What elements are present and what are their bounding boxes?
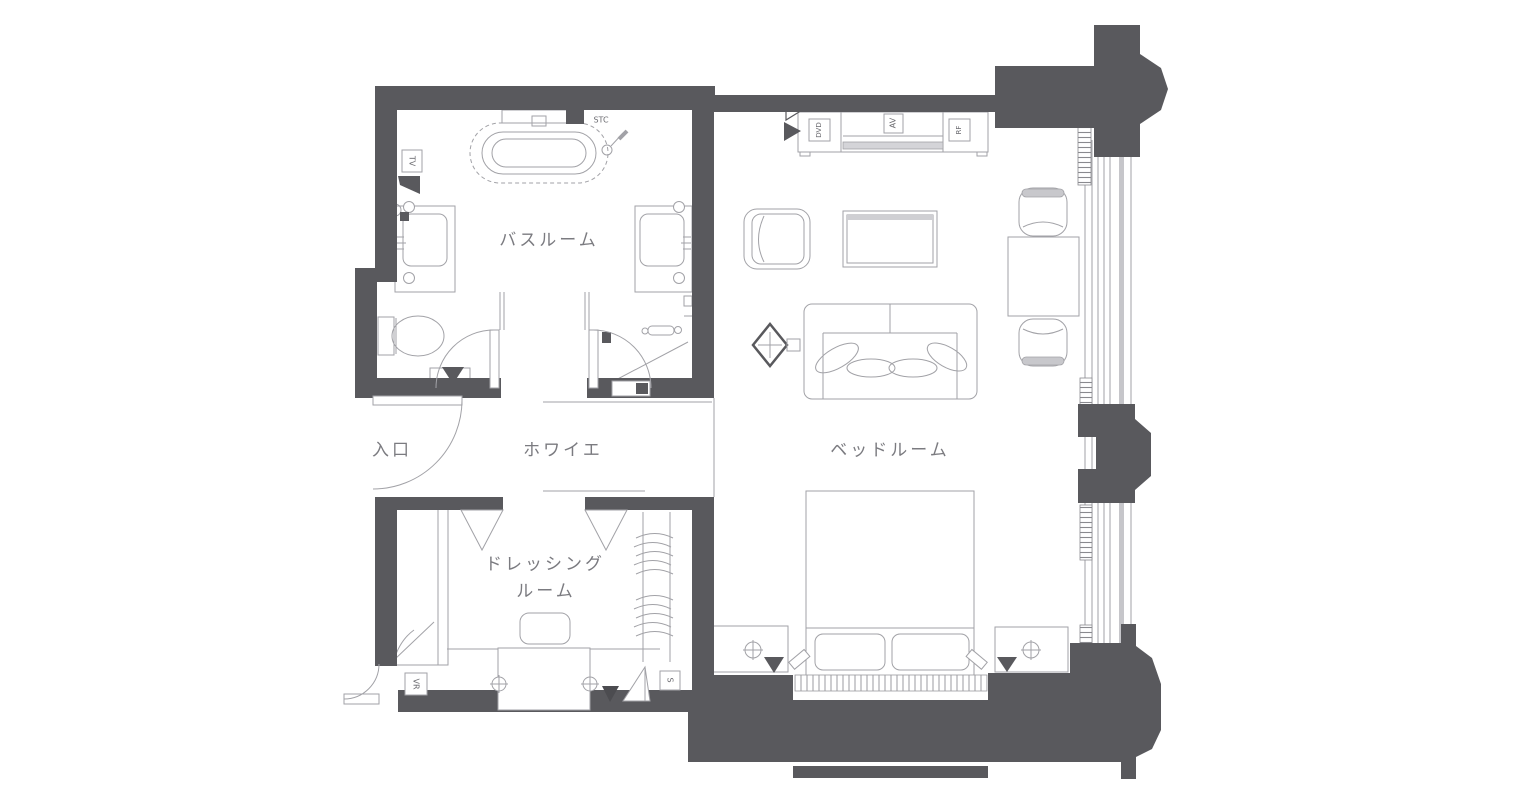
s-tag: S xyxy=(666,677,675,682)
vr-door xyxy=(344,664,379,704)
dressing-label-line1: ドレッシング xyxy=(485,550,605,575)
dining-table xyxy=(1008,237,1079,316)
closet xyxy=(390,508,448,665)
bedroom-label: ベッドルーム xyxy=(830,436,950,461)
dvd-tag: DVD xyxy=(815,122,823,137)
floorplan-drawing xyxy=(0,0,1515,800)
bathroom-partitions xyxy=(500,292,589,330)
sofa xyxy=(804,304,977,399)
wall-inset-detail xyxy=(612,381,650,396)
av-tag: AV xyxy=(889,118,898,128)
rf-tag: RF xyxy=(955,126,963,135)
side-table-lamp xyxy=(753,324,800,366)
bed xyxy=(806,491,974,677)
s-door xyxy=(623,667,650,701)
dressing-label-line2: ルーム xyxy=(516,577,576,602)
chair-top xyxy=(1019,188,1067,236)
vanity-right xyxy=(635,202,692,293)
vr-tag: VR xyxy=(412,678,421,689)
hanging-rail xyxy=(634,512,673,662)
headboard xyxy=(795,675,987,691)
bathroom-label: バスルーム xyxy=(499,226,599,251)
coffee-table xyxy=(843,211,937,267)
entrance-label: 入口 xyxy=(372,436,412,461)
foyer-label: ホワイエ xyxy=(523,436,603,461)
desk xyxy=(490,648,599,710)
floor-plan: バスルーム 入口 ホワイエ ベッドルーム ドレッシング ルーム TV STC D… xyxy=(0,0,1515,800)
dressing-double-doors xyxy=(461,510,627,550)
ottoman xyxy=(520,613,570,644)
bathtub xyxy=(470,123,627,183)
stc-tag: STC xyxy=(593,116,608,125)
tv-tag: TV xyxy=(408,156,417,166)
chair-bottom xyxy=(1019,319,1067,366)
armchair xyxy=(744,209,810,269)
